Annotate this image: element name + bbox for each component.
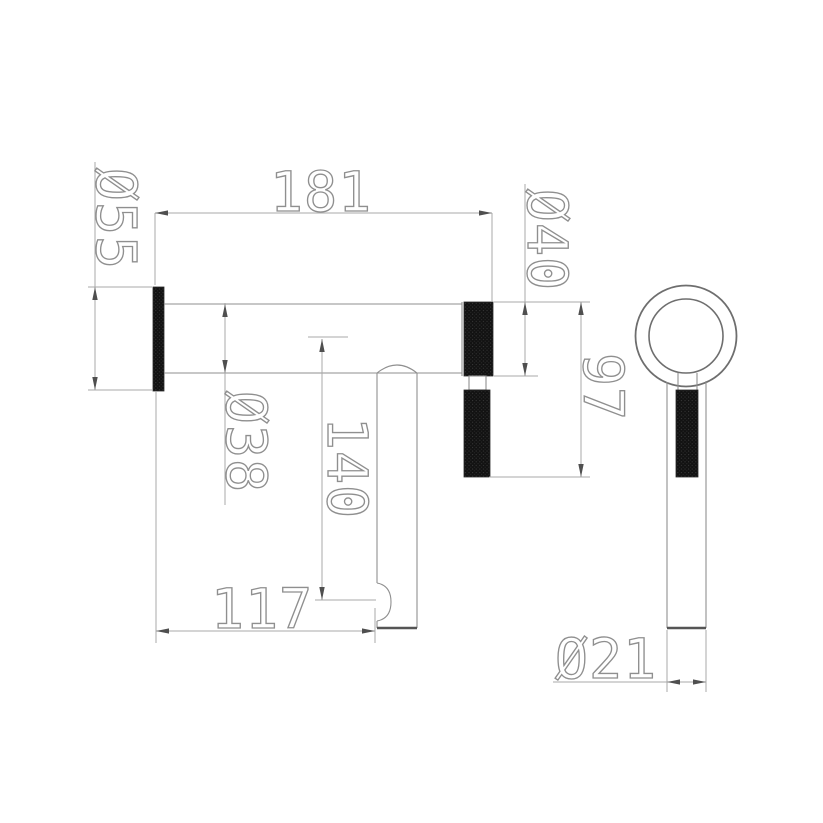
dim-label-grip-drop: 97 bbox=[571, 353, 635, 421]
dim-label-flange-diameter: Ø55 bbox=[84, 168, 148, 270]
tube-knurled-section bbox=[676, 390, 698, 477]
dim-label-body-length: 181 bbox=[270, 160, 372, 224]
dim-body-diameter: Ø38 bbox=[214, 303, 278, 505]
dim-end-knurl-diameter: Ø40 bbox=[494, 184, 590, 376]
grip-knurled bbox=[464, 390, 490, 477]
dim-tube-diameter: Ø21 bbox=[553, 627, 706, 692]
dim-flange-diameter: Ø55 bbox=[84, 162, 152, 390]
dim-spout-drop: 140 bbox=[308, 337, 379, 600]
dim-label-spout-drop: 140 bbox=[315, 417, 379, 519]
dim-label-end-knurl-diameter: Ø40 bbox=[515, 189, 579, 291]
body-circle bbox=[649, 299, 723, 373]
grip-neck bbox=[469, 376, 486, 390]
drawing-canvas: Ø55 181 Ø40 97 bbox=[0, 0, 823, 823]
dim-grip-drop: 97 bbox=[489, 302, 635, 477]
technical-drawing: Ø55 181 Ø40 97 bbox=[0, 0, 823, 823]
spout-nozzle-bump bbox=[377, 583, 391, 621]
dim-body-length: 181 bbox=[155, 160, 492, 301]
end-cap-knurled bbox=[464, 302, 493, 376]
dim-label-tube-diameter: Ø21 bbox=[555, 627, 657, 691]
dim-label-body-diameter: Ø38 bbox=[214, 391, 278, 493]
side-view bbox=[636, 286, 737, 629]
wall-flange-knurled bbox=[153, 287, 164, 391]
dim-label-spout-offset: 117 bbox=[211, 577, 313, 641]
spout-shoulder-arc bbox=[377, 365, 417, 373]
